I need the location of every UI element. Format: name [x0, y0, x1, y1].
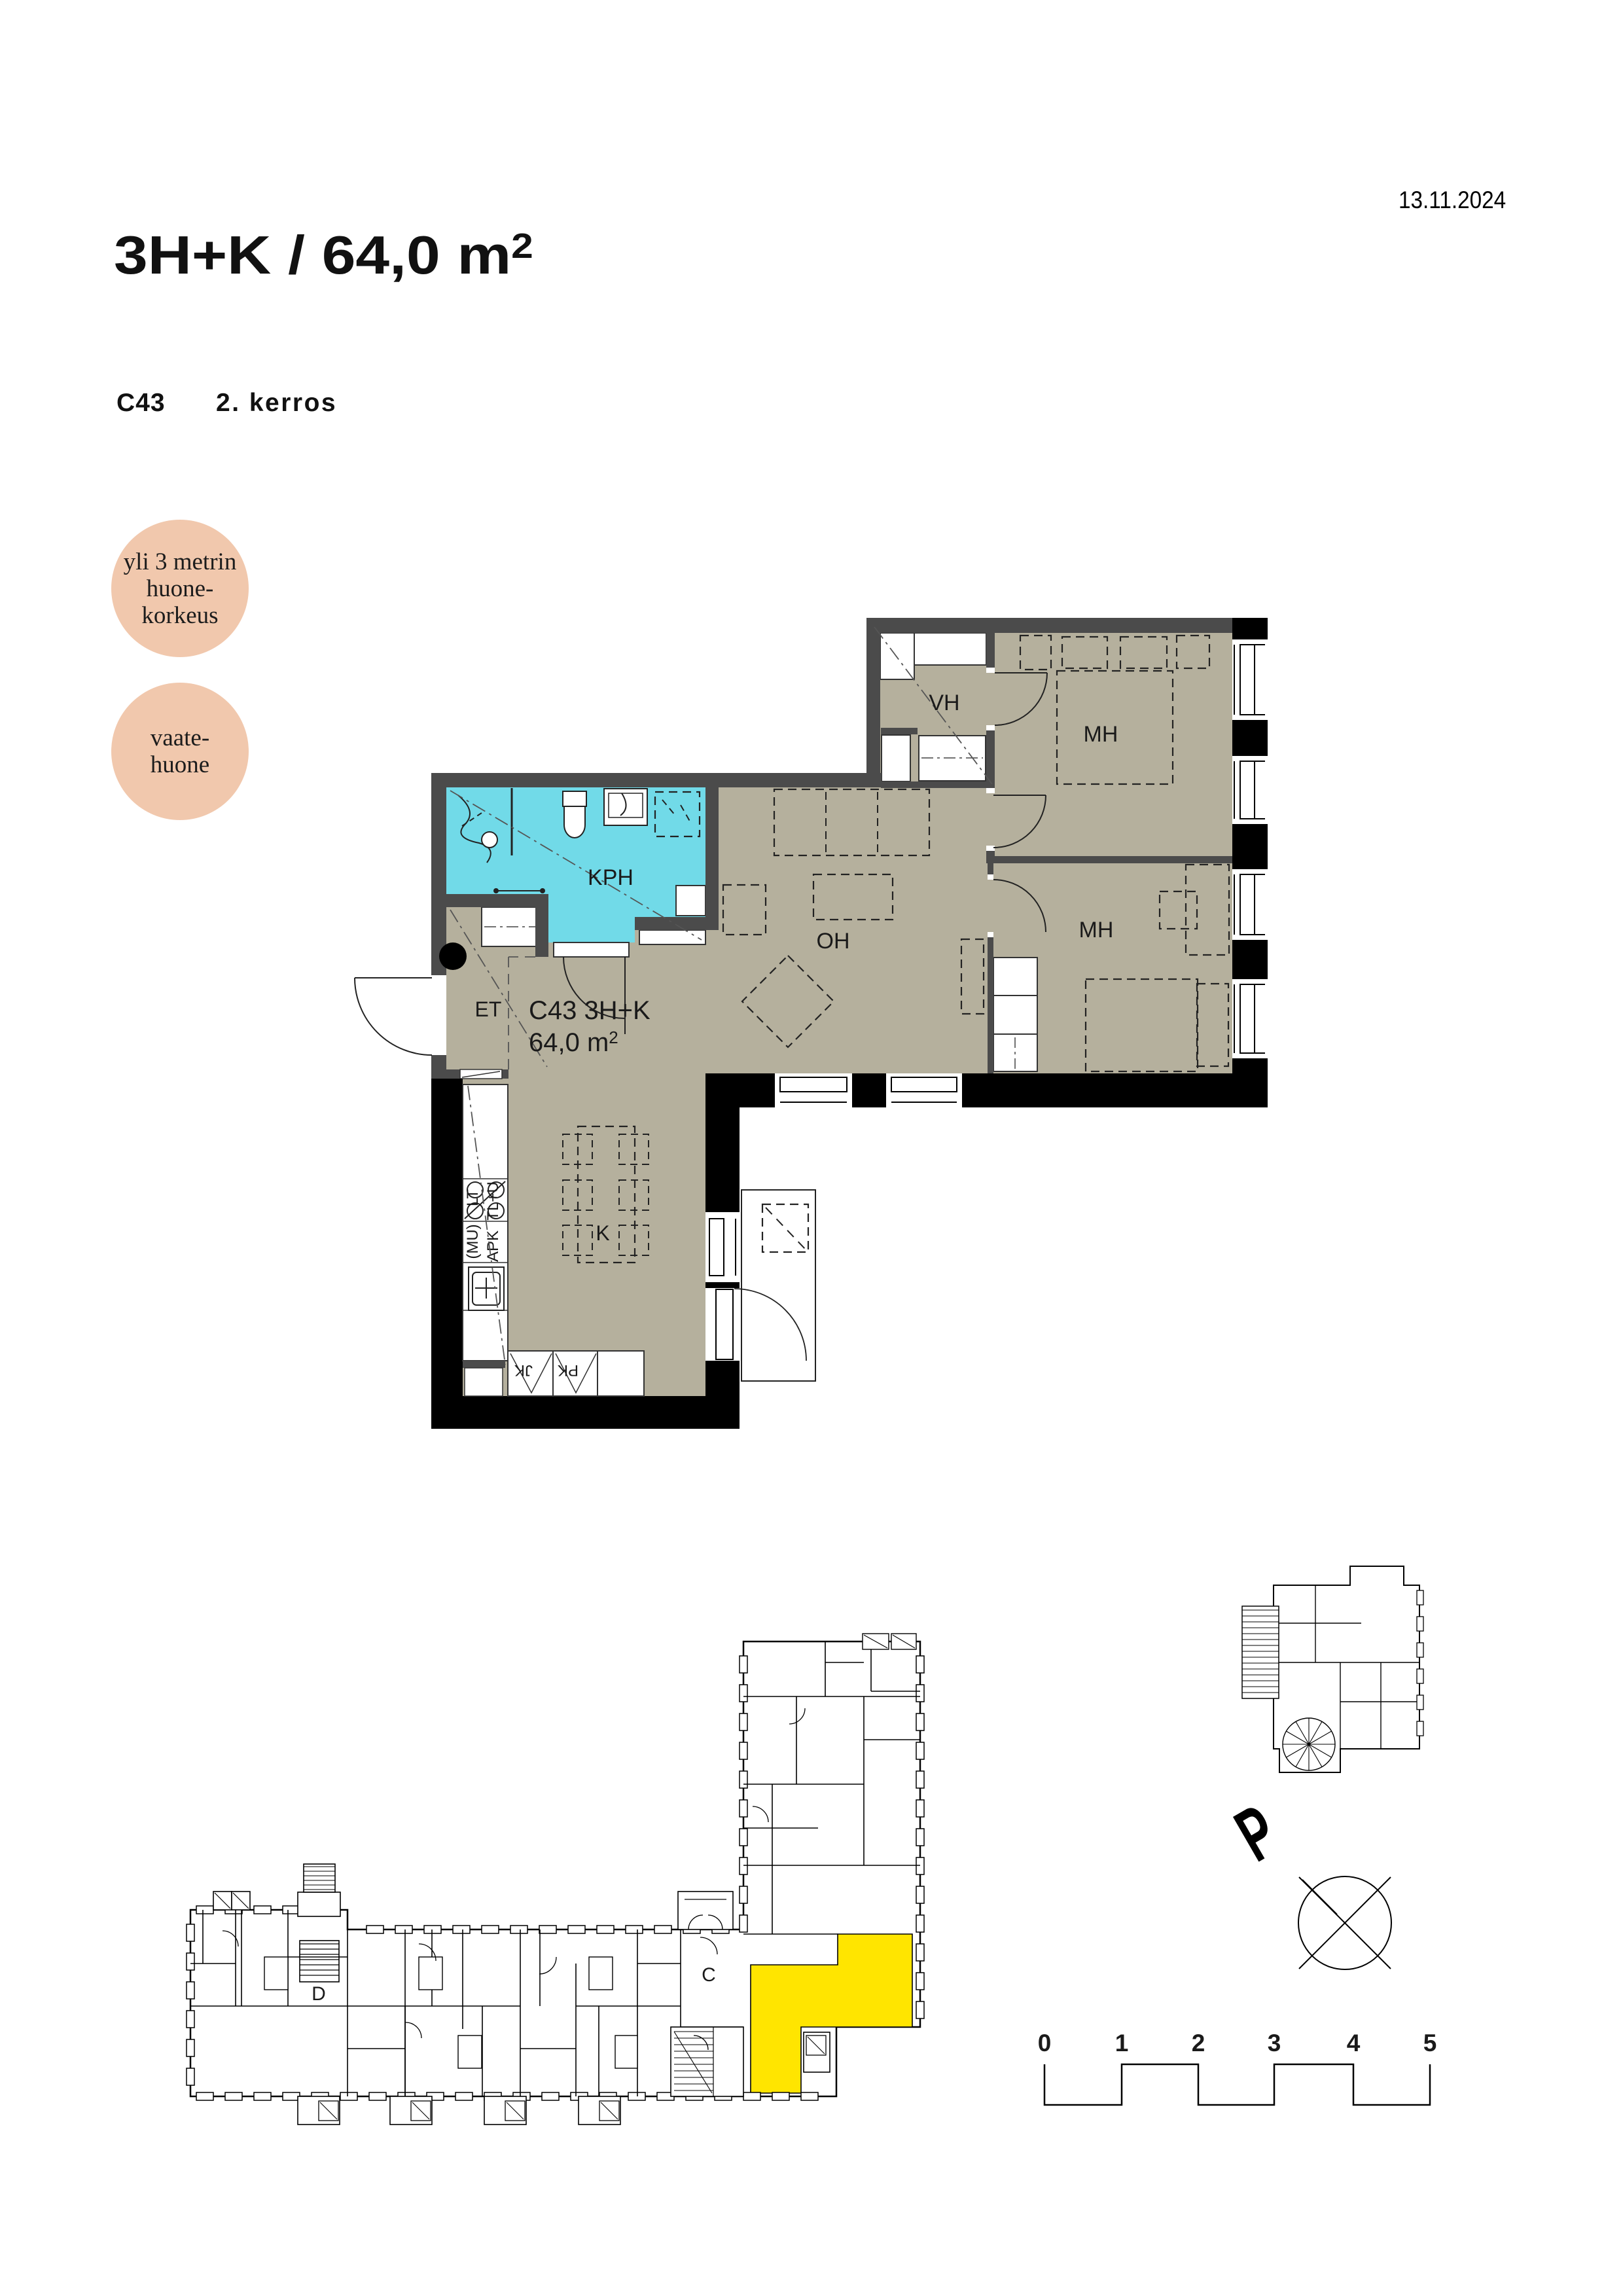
svg-text:APK: APK — [484, 1230, 502, 1262]
svg-text:PK: PK — [558, 1361, 579, 1379]
svg-text:C: C — [702, 1964, 716, 1986]
svg-text:MH: MH — [1084, 722, 1118, 747]
svg-text:TL+U: TL+U — [484, 1181, 502, 1220]
svg-text:P: P — [1222, 1789, 1291, 1878]
svg-text:KPH: KPH — [588, 865, 633, 890]
svg-text:ET: ET — [475, 997, 502, 1021]
svg-text:C43 3H+K: C43 3H+K — [529, 996, 651, 1025]
svg-text:1: 1 — [1115, 2030, 1129, 2056]
svg-text:VH: VH — [929, 691, 959, 715]
svg-text:MH: MH — [1079, 918, 1114, 942]
svg-text:2: 2 — [1192, 2030, 1205, 2056]
svg-text:JK: JK — [514, 1361, 533, 1379]
svg-text:5: 5 — [1423, 2030, 1437, 2056]
svg-text:OH: OH — [817, 929, 850, 954]
svg-text:64,0 m2: 64,0 m2 — [529, 1028, 618, 1057]
svg-text:3: 3 — [1268, 2030, 1281, 2056]
svg-text:D: D — [312, 1983, 326, 2005]
svg-text:4: 4 — [1347, 2030, 1361, 2056]
svg-text:LT: LT — [464, 1189, 482, 1207]
svg-text:K: K — [596, 1221, 609, 1245]
svg-text:0: 0 — [1038, 2030, 1052, 2056]
svg-text:(MU): (MU) — [464, 1224, 482, 1259]
